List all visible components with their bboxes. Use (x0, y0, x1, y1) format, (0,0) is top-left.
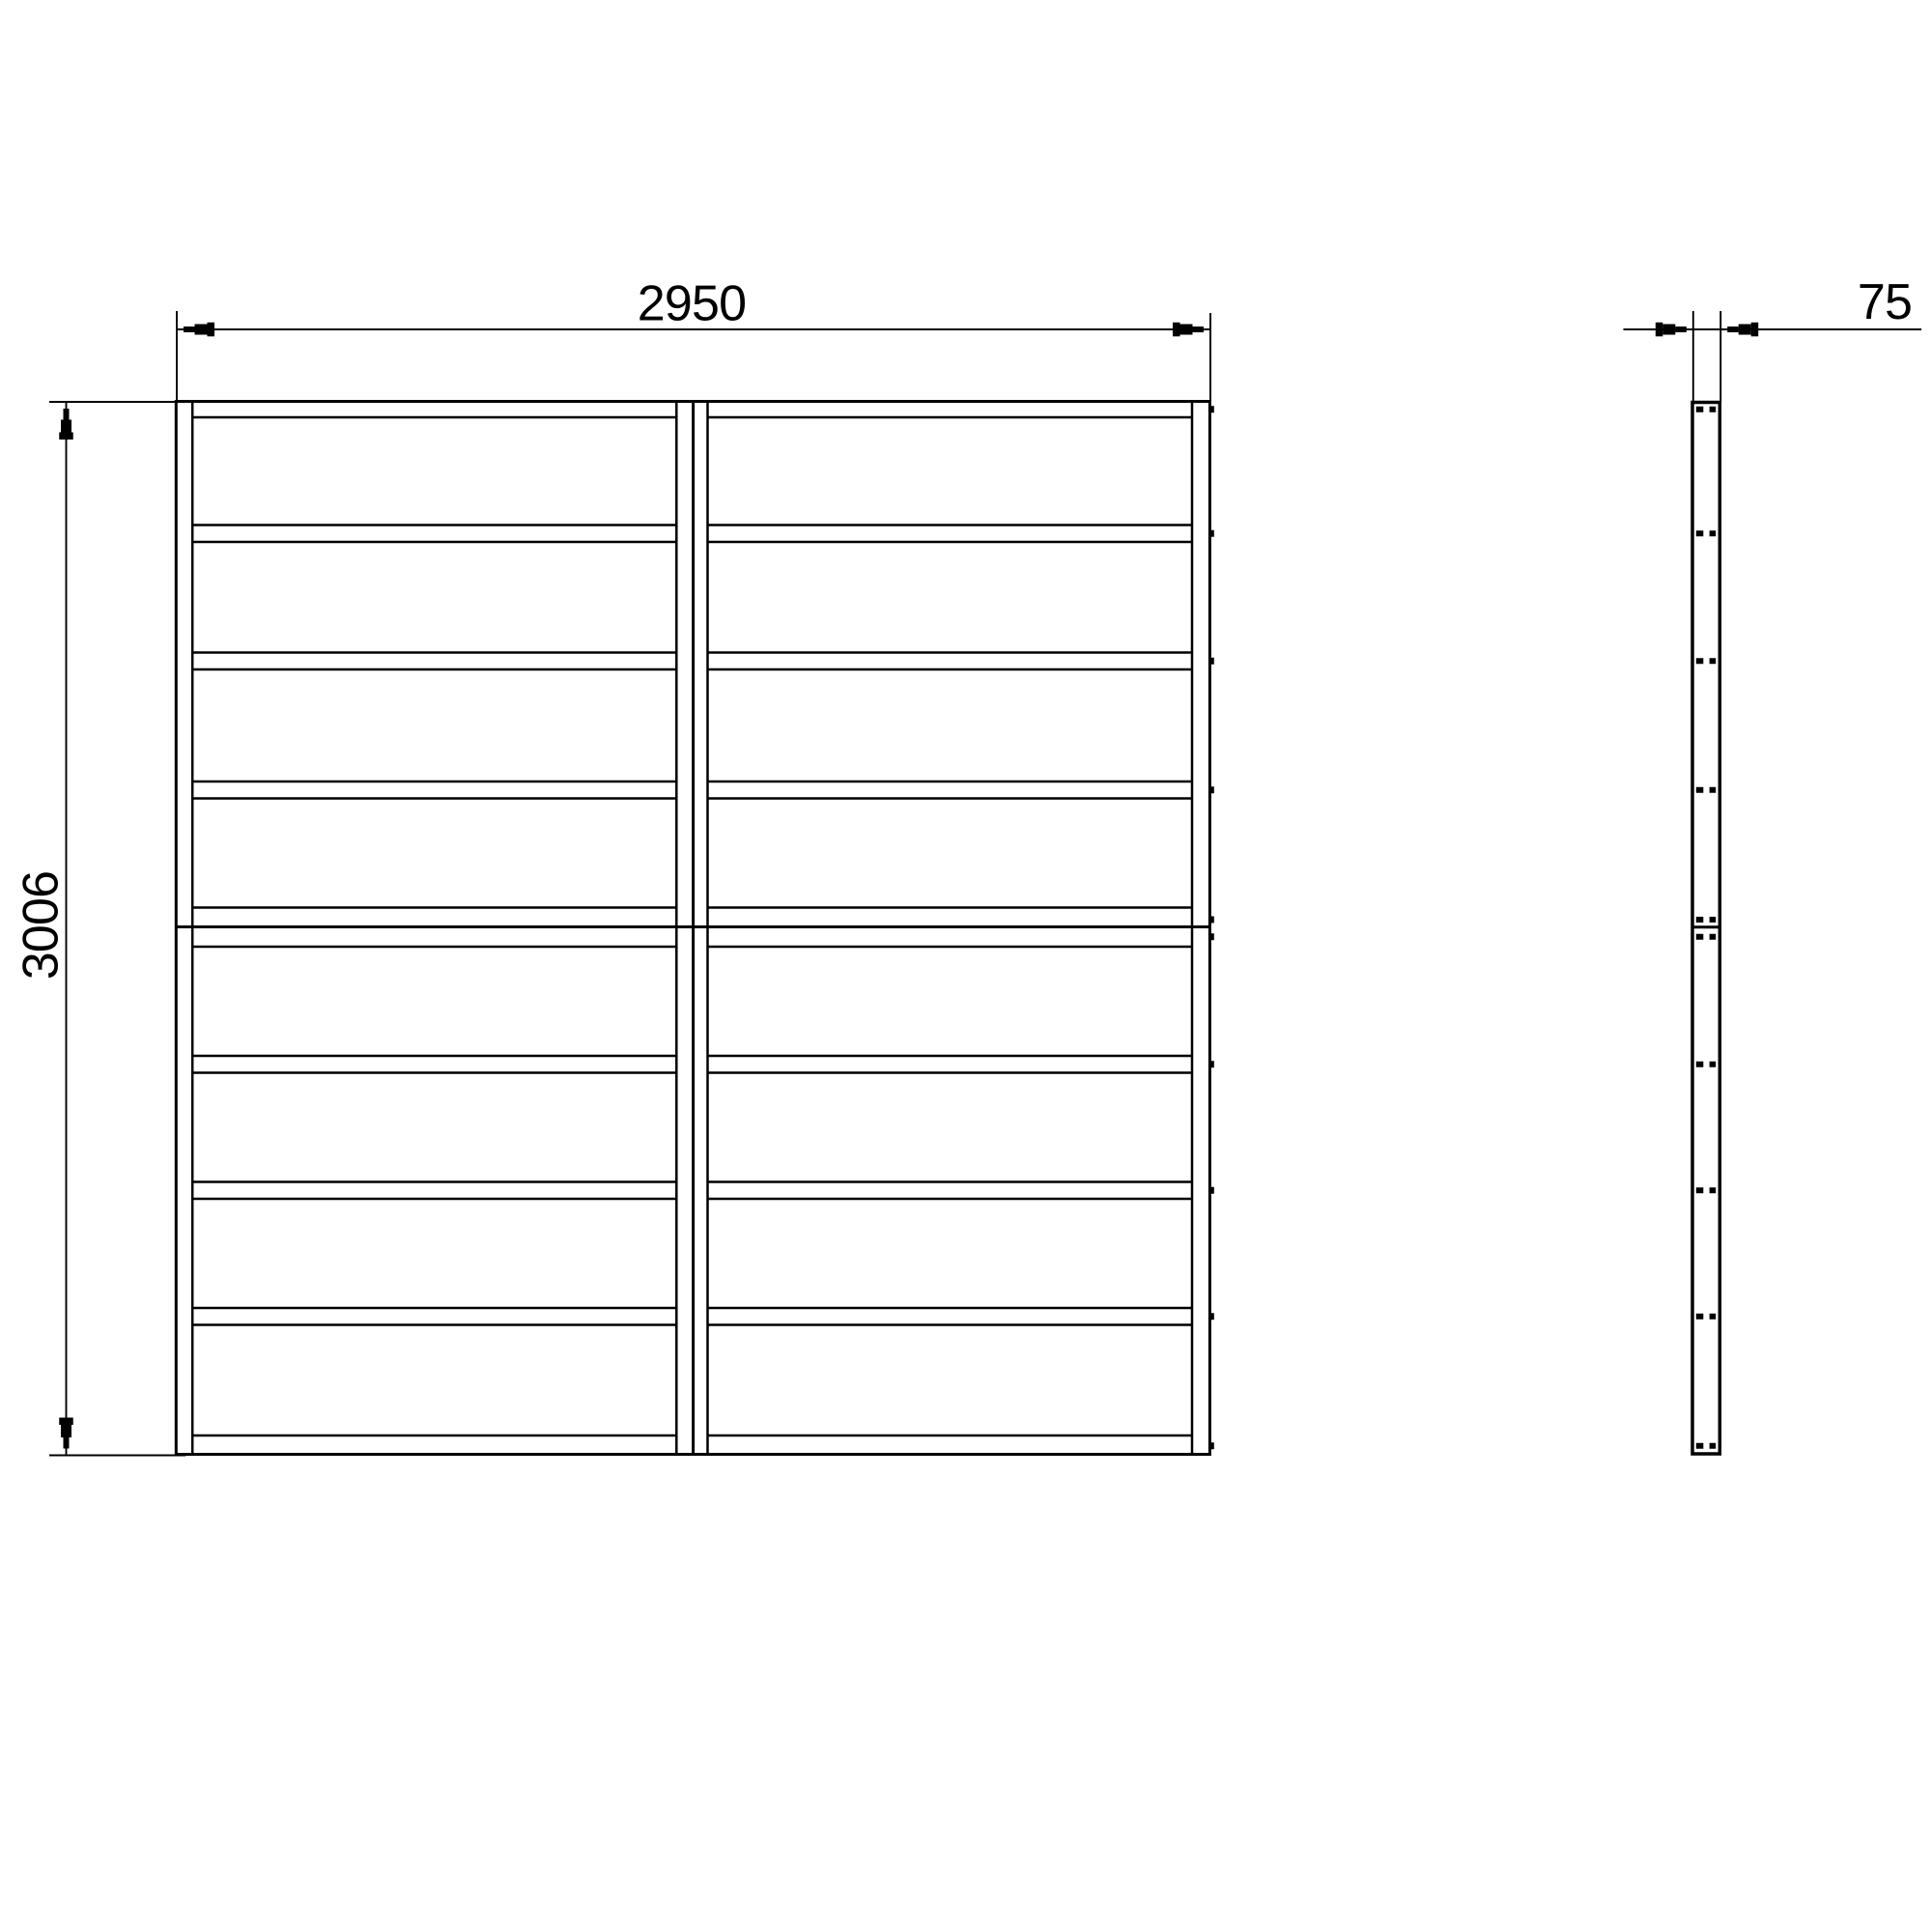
svg-text:2950: 2950 (638, 276, 746, 332)
svg-text:75: 75 (1858, 274, 1912, 330)
svg-text:3006: 3006 (14, 871, 70, 980)
